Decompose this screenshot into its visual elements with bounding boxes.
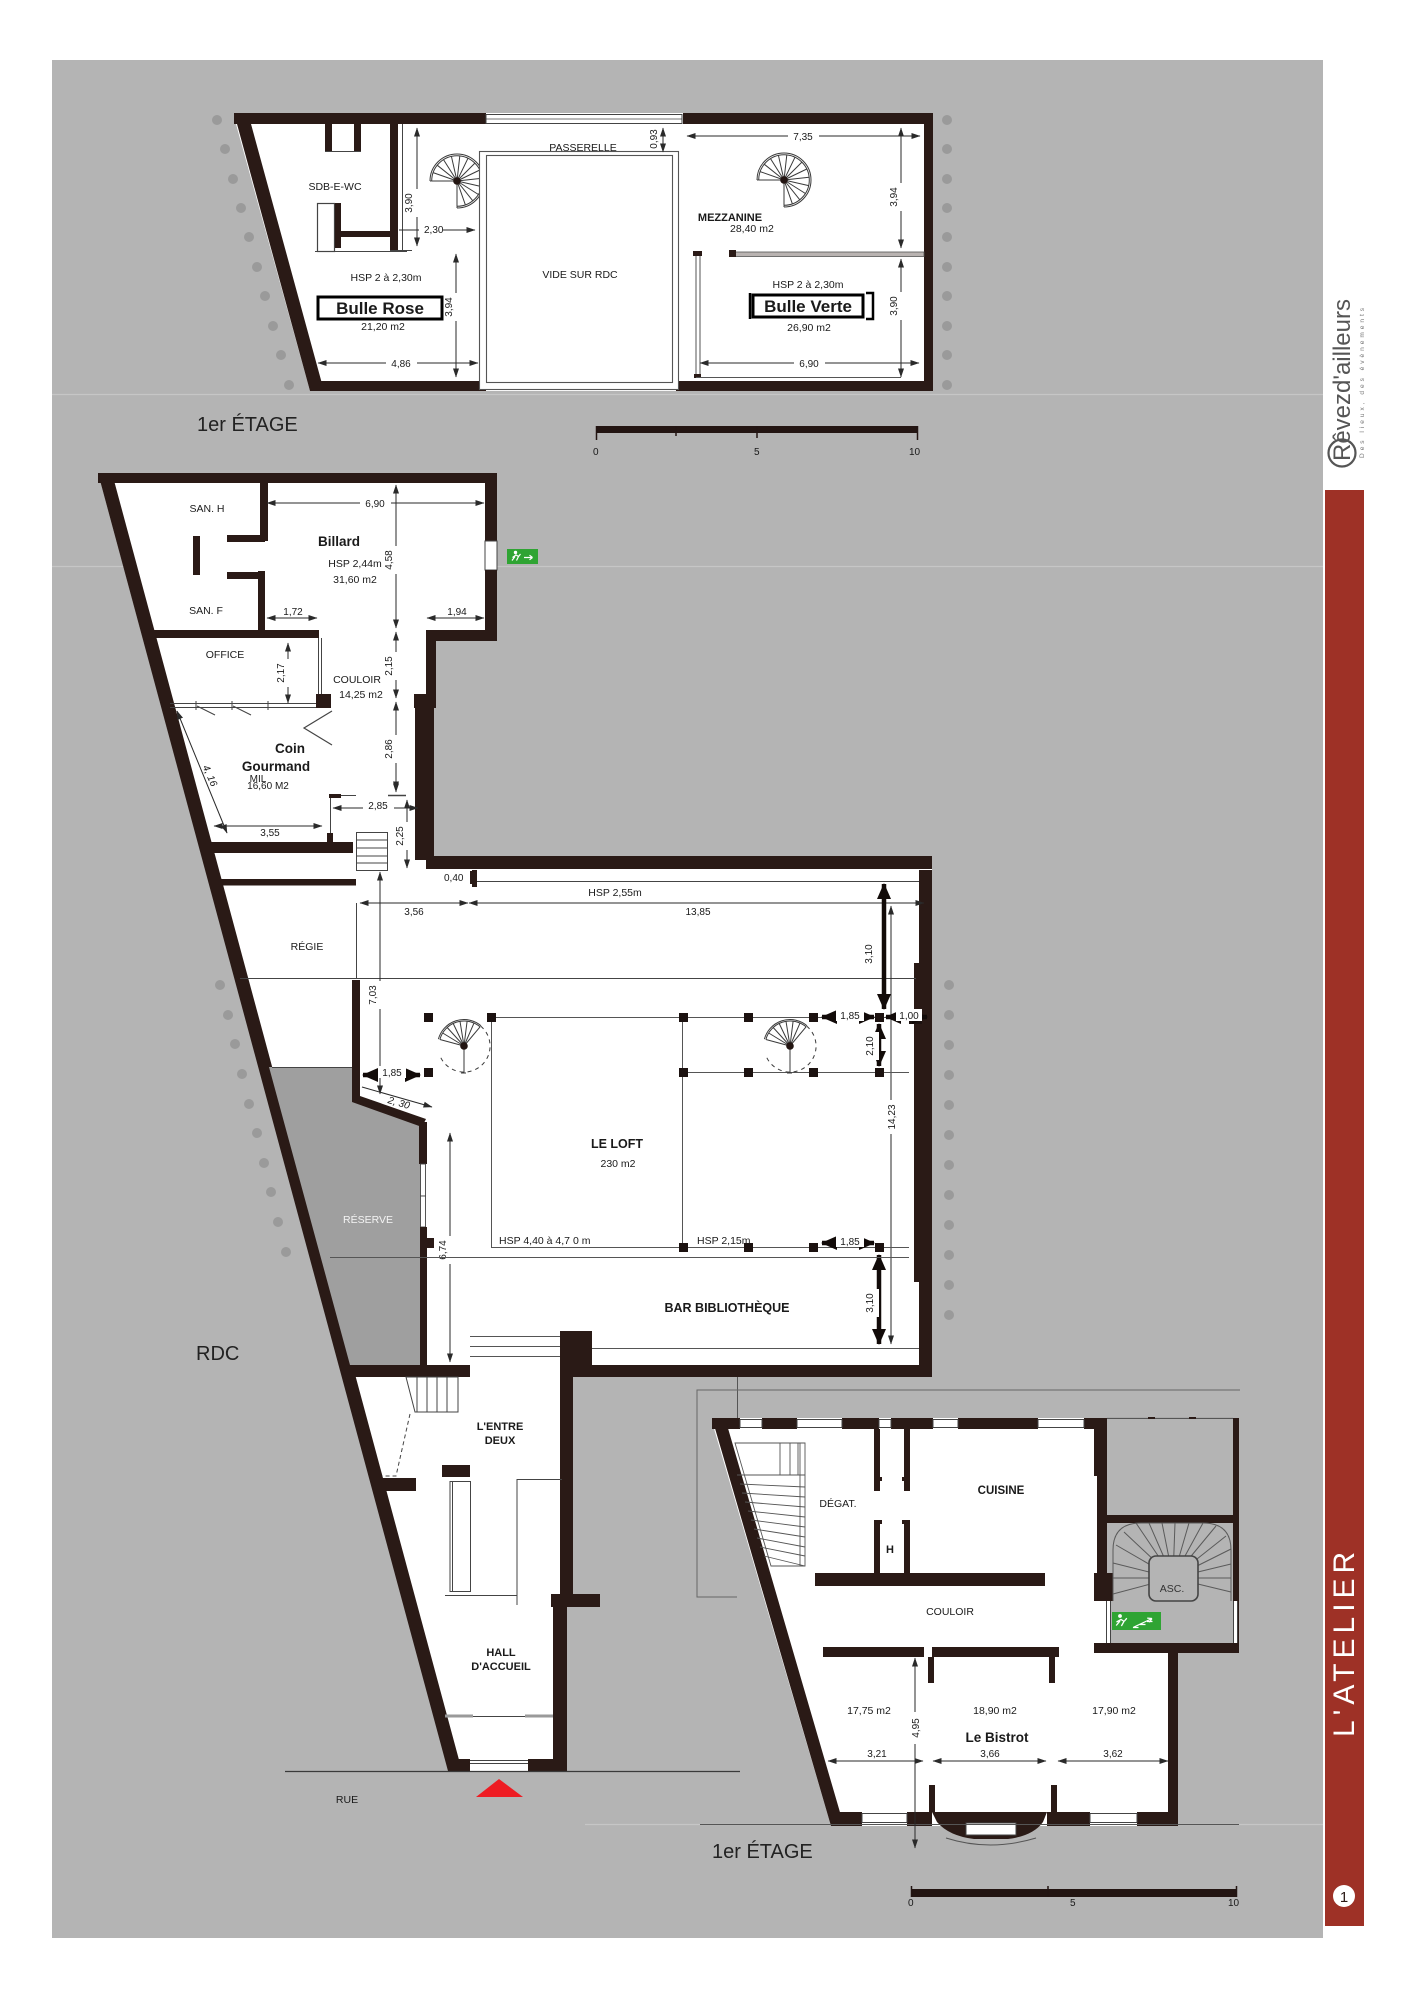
svg-text:7,35: 7,35 <box>793 132 813 143</box>
svg-text:HSP 2,44m: HSP 2,44m <box>328 558 382 570</box>
svg-text:1,85: 1,85 <box>382 1068 402 1079</box>
svg-text:17,75 m2: 17,75 m2 <box>847 1705 891 1717</box>
svg-text:Gourmand: Gourmand <box>242 759 310 774</box>
svg-text:D'ACCUEIL: D'ACCUEIL <box>471 1661 531 1673</box>
svg-text:OFFICE: OFFICE <box>206 649 245 661</box>
svg-text:L'ENTRE: L'ENTRE <box>477 1421 524 1433</box>
svg-text:LE LOFT: LE LOFT <box>591 1137 643 1151</box>
svg-text:H: H <box>886 1544 894 1556</box>
svg-text:1,72: 1,72 <box>283 607 303 618</box>
svg-text:4,86: 4,86 <box>391 359 411 370</box>
svg-text:RDC: RDC <box>196 1343 239 1365</box>
svg-text:3,94: 3,94 <box>889 187 900 207</box>
svg-text:CUISINE: CUISINE <box>978 1485 1025 1497</box>
svg-text:3,10: 3,10 <box>865 1293 876 1313</box>
svg-text:10: 10 <box>909 447 921 458</box>
svg-text:Des lieux, des évènements: Des lieux, des évènements <box>1359 305 1366 458</box>
svg-text:21,20 m2: 21,20 m2 <box>361 321 405 333</box>
svg-text:L'ATELIER: L'ATELIER <box>1328 1547 1361 1737</box>
svg-text:SAN. H: SAN. H <box>189 503 224 515</box>
svg-text:HSP 2,15m: HSP 2,15m <box>697 1235 751 1247</box>
svg-text:VIDE SUR RDC: VIDE SUR RDC <box>542 269 618 281</box>
svg-text:230 m2: 230 m2 <box>600 1158 635 1170</box>
svg-text:13,85: 13,85 <box>685 907 710 918</box>
svg-text:3,56: 3,56 <box>404 907 424 918</box>
svg-text:RÉSERVE: RÉSERVE <box>343 1213 393 1226</box>
svg-text:1,00: 1,00 <box>899 1011 919 1022</box>
svg-text:HSP 2 à 2,30m: HSP 2 à 2,30m <box>772 279 843 291</box>
svg-text:2,85: 2,85 <box>368 801 388 812</box>
svg-text:6,90: 6,90 <box>799 359 819 370</box>
svg-text:0: 0 <box>593 447 599 458</box>
svg-text:3,10: 3,10 <box>864 944 875 964</box>
svg-text:3,90: 3,90 <box>404 193 415 213</box>
svg-text:0: 0 <box>908 1898 914 1909</box>
svg-text:Bulle Verte: Bulle Verte <box>764 297 852 316</box>
svg-text:26,90 m2: 26,90 m2 <box>787 322 831 334</box>
svg-text:2,86: 2,86 <box>384 739 395 759</box>
svg-text:SDB-E-WC: SDB-E-WC <box>308 181 361 193</box>
svg-text:BAR BIBLIOTHÈQUE: BAR BIBLIOTHÈQUE <box>665 1300 790 1315</box>
svg-text:2,15: 2,15 <box>384 656 395 676</box>
svg-text:3,66: 3,66 <box>980 1749 1000 1760</box>
svg-text:PASSERELLE: PASSERELLE <box>549 142 617 154</box>
svg-text:14,25 m2: 14,25 m2 <box>339 689 383 701</box>
svg-text:1er ÉTAGE: 1er ÉTAGE <box>197 413 298 436</box>
svg-text:7,03: 7,03 <box>368 985 379 1005</box>
svg-text:6,90: 6,90 <box>365 499 385 510</box>
svg-text:Billard: Billard <box>318 534 360 549</box>
svg-text:COULOIR: COULOIR <box>333 674 381 686</box>
svg-text:1er ÉTAGE: 1er ÉTAGE <box>712 1840 813 1863</box>
svg-text:HSP 4,40 à 4,7 0 m: HSP 4,40 à 4,7 0 m <box>499 1235 591 1247</box>
svg-text:3,55: 3,55 <box>260 828 280 839</box>
svg-text:28,40 m2: 28,40 m2 <box>730 223 774 235</box>
svg-text:2,17: 2,17 <box>276 663 287 683</box>
svg-text:2,30: 2,30 <box>424 225 444 236</box>
svg-text:Le Bistrot: Le Bistrot <box>965 1730 1029 1745</box>
svg-text:COULOIR: COULOIR <box>926 1606 974 1618</box>
svg-text:18,90 m2: 18,90 m2 <box>973 1705 1017 1717</box>
svg-text:DEUX: DEUX <box>485 1435 516 1447</box>
svg-text:6,74: 6,74 <box>438 1240 449 1260</box>
svg-text:3,62: 3,62 <box>1103 1749 1123 1760</box>
svg-text:1,85: 1,85 <box>840 1237 860 1248</box>
svg-text:17,90 m2: 17,90 m2 <box>1092 1705 1136 1717</box>
svg-text:10: 10 <box>1228 1898 1240 1909</box>
svg-text:RÉGIE: RÉGIE <box>291 940 324 953</box>
svg-text:0,40: 0,40 <box>444 873 464 884</box>
svg-text:HSP 2 à 2,30m: HSP 2 à 2,30m <box>350 272 421 284</box>
svg-text:DÉGAT.: DÉGAT. <box>819 1497 856 1510</box>
svg-text:ASC.: ASC. <box>1160 1583 1185 1595</box>
svg-text:0,93: 0,93 <box>649 129 660 149</box>
svg-text:4,58: 4,58 <box>384 550 395 570</box>
svg-text:16,60 M2: 16,60 M2 <box>247 781 289 792</box>
svg-text:Bulle Rose: Bulle Rose <box>336 299 424 318</box>
svg-text:2,25: 2,25 <box>395 826 406 846</box>
svg-text:1,94: 1,94 <box>447 607 467 618</box>
svg-text:HALL: HALL <box>486 1647 516 1659</box>
svg-text:Rêvezd'ailleurs: Rêvezd'ailleurs <box>1329 299 1356 461</box>
svg-text:RUE: RUE <box>336 1794 358 1806</box>
svg-text:Coin: Coin <box>275 741 305 756</box>
svg-text:31,60 m2: 31,60 m2 <box>333 574 377 586</box>
svg-text:HSP 2,55m: HSP 2,55m <box>588 887 642 899</box>
svg-text:1: 1 <box>1340 1889 1348 1906</box>
svg-text:5: 5 <box>1070 1898 1076 1909</box>
svg-text:14,23: 14,23 <box>887 1104 898 1129</box>
svg-text:2,10: 2,10 <box>865 1036 876 1056</box>
svg-text:SAN. F: SAN. F <box>189 605 223 617</box>
svg-text:1,85: 1,85 <box>840 1011 860 1022</box>
svg-text:3,90: 3,90 <box>889 296 900 316</box>
svg-text:4,95: 4,95 <box>911 1718 922 1738</box>
svg-text:3,21: 3,21 <box>867 1749 887 1760</box>
svg-text:5: 5 <box>754 447 760 458</box>
svg-text:3,94: 3,94 <box>444 297 455 317</box>
